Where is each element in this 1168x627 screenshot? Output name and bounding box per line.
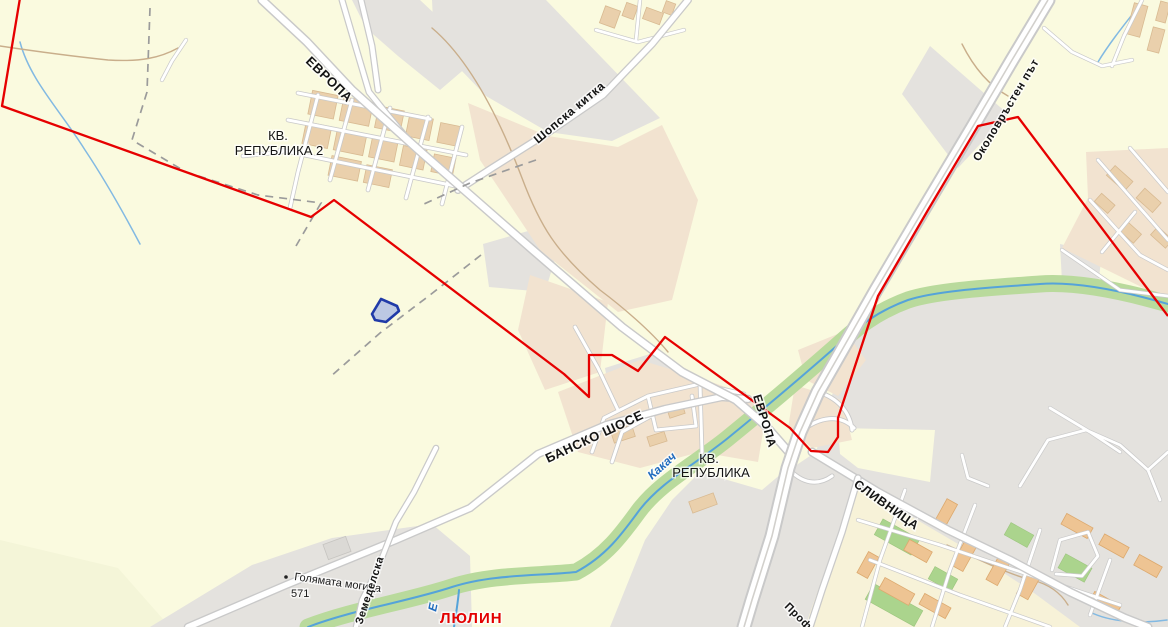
place-label-kv-republika-line1: КВ. xyxy=(699,451,719,466)
place-label-kv-republika2-line2: РЕПУБЛИКА 2 xyxy=(235,143,323,158)
map-canvas[interactable]: ЕВРОПА КВ. РЕПУБЛИКА 2 Шопска китка Окол… xyxy=(0,0,1168,627)
place-label-kv-republika2-line1: КВ. xyxy=(268,128,288,143)
district-label-lyulin: ЛЮЛИН xyxy=(440,610,503,627)
map-viewport[interactable]: ЕВРОПА КВ. РЕПУБЛИКА 2 Шопска китка Окол… xyxy=(0,0,1168,627)
summit-dot-marker xyxy=(284,575,288,579)
poi-label-elevation: 571 xyxy=(291,588,309,600)
place-label-kv-republika-line2: РЕПУБЛИКА xyxy=(672,465,750,480)
